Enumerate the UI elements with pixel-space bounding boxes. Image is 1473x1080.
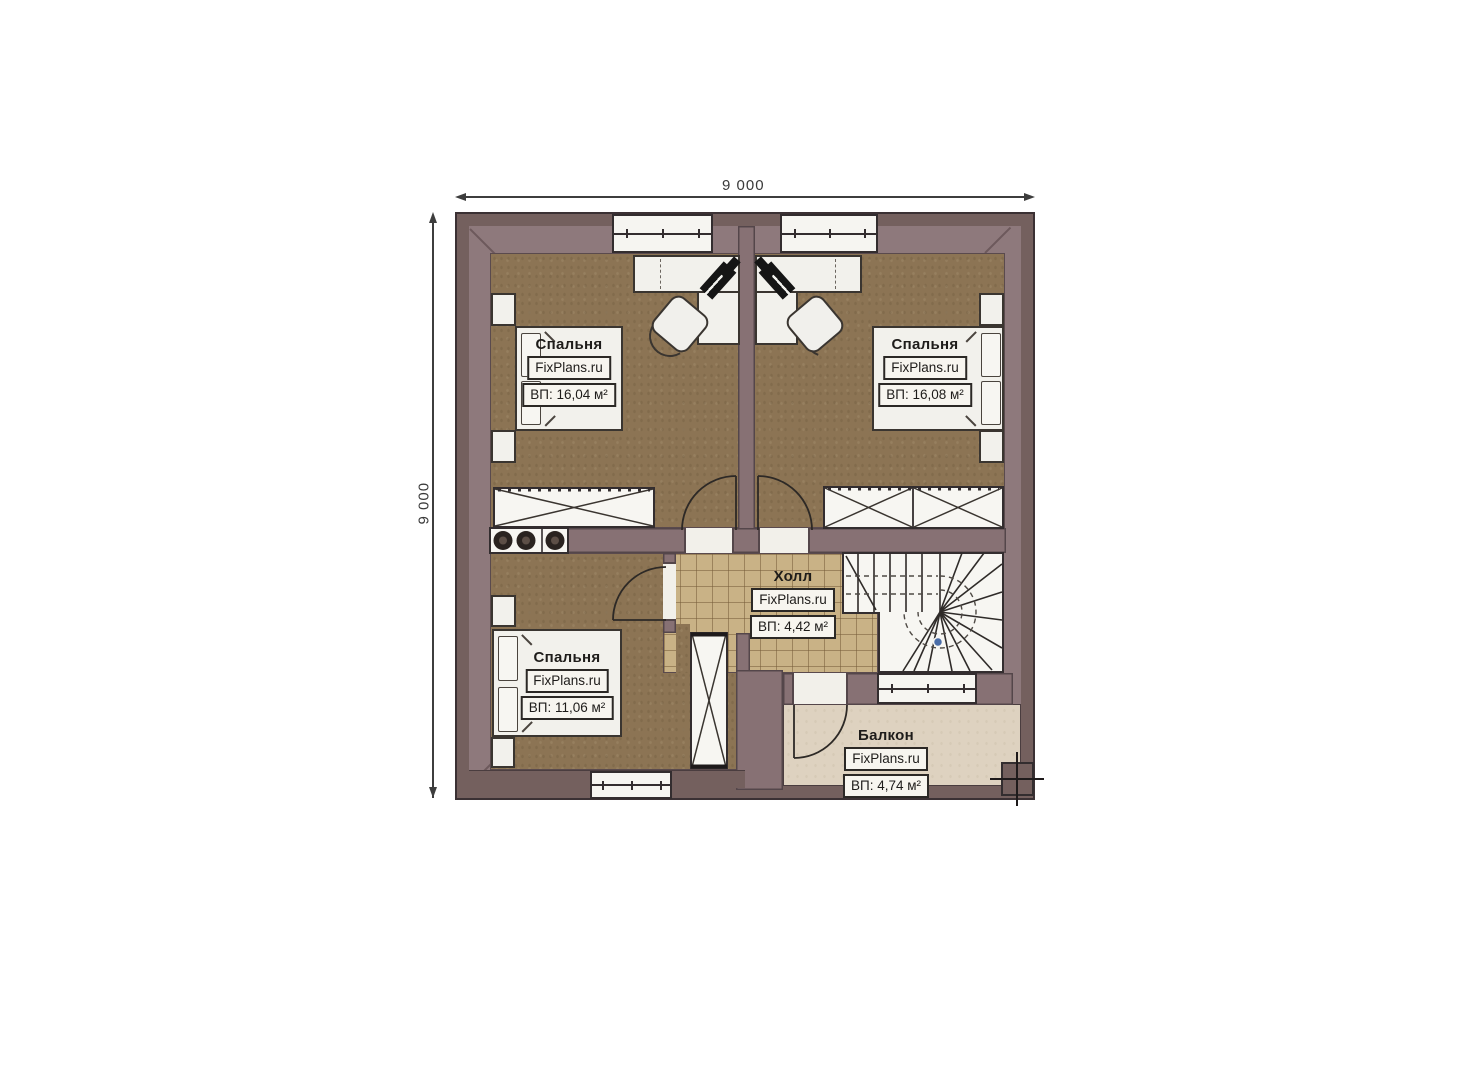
brand-badge: FixPlans.ru <box>844 747 928 771</box>
pillow-icon <box>498 687 518 732</box>
room-name: Спальня <box>534 649 601 666</box>
wardrobe-icon-bedroom-tr <box>823 486 1004 529</box>
stairs-icon <box>842 552 1004 673</box>
room-label-bedroom-bottom-left: Спальня FixPlans.ru ВП: 11,06 м² <box>521 649 614 720</box>
desk-drawer-mark <box>660 259 661 289</box>
blanket-fold-mark <box>545 415 556 426</box>
pillow-icon <box>498 636 518 681</box>
room-name: Холл <box>774 568 813 585</box>
door-arc-bedroom-bl <box>611 562 671 624</box>
area-badge: ВП: 16,08 м² <box>878 383 972 407</box>
room-label-balcony: Балкон FixPlans.ru ВП: 4,74 м² <box>843 727 929 798</box>
bedroom-floor-patch <box>676 624 690 673</box>
dimension-arrow-down <box>429 787 437 798</box>
dimension-arrow-up <box>429 212 437 223</box>
nightstand-icon <box>491 595 516 627</box>
room-name: Балкон <box>858 727 914 744</box>
dimension-line-top <box>459 196 1031 198</box>
floor-plan-page: 9 000 9 000 <box>0 0 1473 1080</box>
window-mullion <box>864 229 866 238</box>
window-bottom <box>590 771 672 799</box>
area-badge: ВП: 4,74 м² <box>843 774 929 798</box>
nightstand-icon <box>979 430 1004 463</box>
door-arc-bedroom-tr <box>756 474 814 532</box>
window-mullion <box>829 229 831 238</box>
pillow-icon <box>981 381 1001 425</box>
door-arc-balcony <box>792 703 850 761</box>
window-balcony <box>877 673 977 704</box>
room-label-bedroom-top-left: Спальня FixPlans.ru ВП: 16,04 м² <box>522 336 616 407</box>
dimension-width-label: 9 000 <box>722 177 765 194</box>
brand-badge: FixPlans.ru <box>751 588 835 612</box>
door-opening-balcony <box>792 673 848 704</box>
blanket-fold-mark <box>522 721 533 732</box>
blanket-fold-mark <box>522 634 533 645</box>
window-mullion <box>660 781 662 790</box>
stair-node-marker <box>934 638 943 647</box>
pillar-axis-mark-v <box>1016 752 1018 806</box>
window-mullion <box>662 229 664 238</box>
pillow-icon <box>981 333 1001 377</box>
round-fixtures-icon <box>489 527 569 554</box>
room-label-bedroom-top-right: Спальня FixPlans.ru ВП: 16,08 м² <box>878 336 972 407</box>
window-top-right <box>780 214 878 253</box>
window-mullion <box>631 781 633 790</box>
dimension-height-label: 9 000 <box>416 485 433 525</box>
wardrobe-icon-bedroom-tl <box>493 487 655 528</box>
brand-badge: FixPlans.ru <box>525 669 609 693</box>
window-mullion <box>891 684 893 693</box>
window-mullion <box>626 229 628 238</box>
window-mullion <box>927 684 929 693</box>
nightstand-icon <box>491 430 516 463</box>
window-mullion <box>698 229 700 238</box>
area-badge: ВП: 16,04 м² <box>522 383 616 407</box>
room-name: Спальня <box>892 336 959 353</box>
wall-central <box>738 226 755 553</box>
nightstand-icon <box>979 293 1004 326</box>
door-arc-bedroom-tl <box>680 474 738 532</box>
nightstand-icon <box>491 293 516 326</box>
window-mullion <box>963 684 965 693</box>
window-mullion <box>794 229 796 238</box>
area-badge: ВП: 11,06 м² <box>521 696 614 720</box>
window-top-left <box>612 214 713 253</box>
desk-drawer-mark <box>835 259 836 289</box>
area-badge: ВП: 4,42 м² <box>750 615 836 639</box>
room-label-hall: Холл FixPlans.ru ВП: 4,42 м² <box>750 568 836 639</box>
blanket-fold-mark <box>966 415 977 426</box>
room-name: Спальня <box>536 336 603 353</box>
dimension-arrow-left <box>455 193 466 201</box>
dimension-arrow-right <box>1024 193 1035 201</box>
brand-badge: FixPlans.ru <box>527 356 611 380</box>
nightstand-icon <box>491 737 515 768</box>
closet-icon-bedroom-bl <box>690 632 728 769</box>
brand-badge: FixPlans.ru <box>883 356 967 380</box>
window-mullion <box>602 781 604 790</box>
